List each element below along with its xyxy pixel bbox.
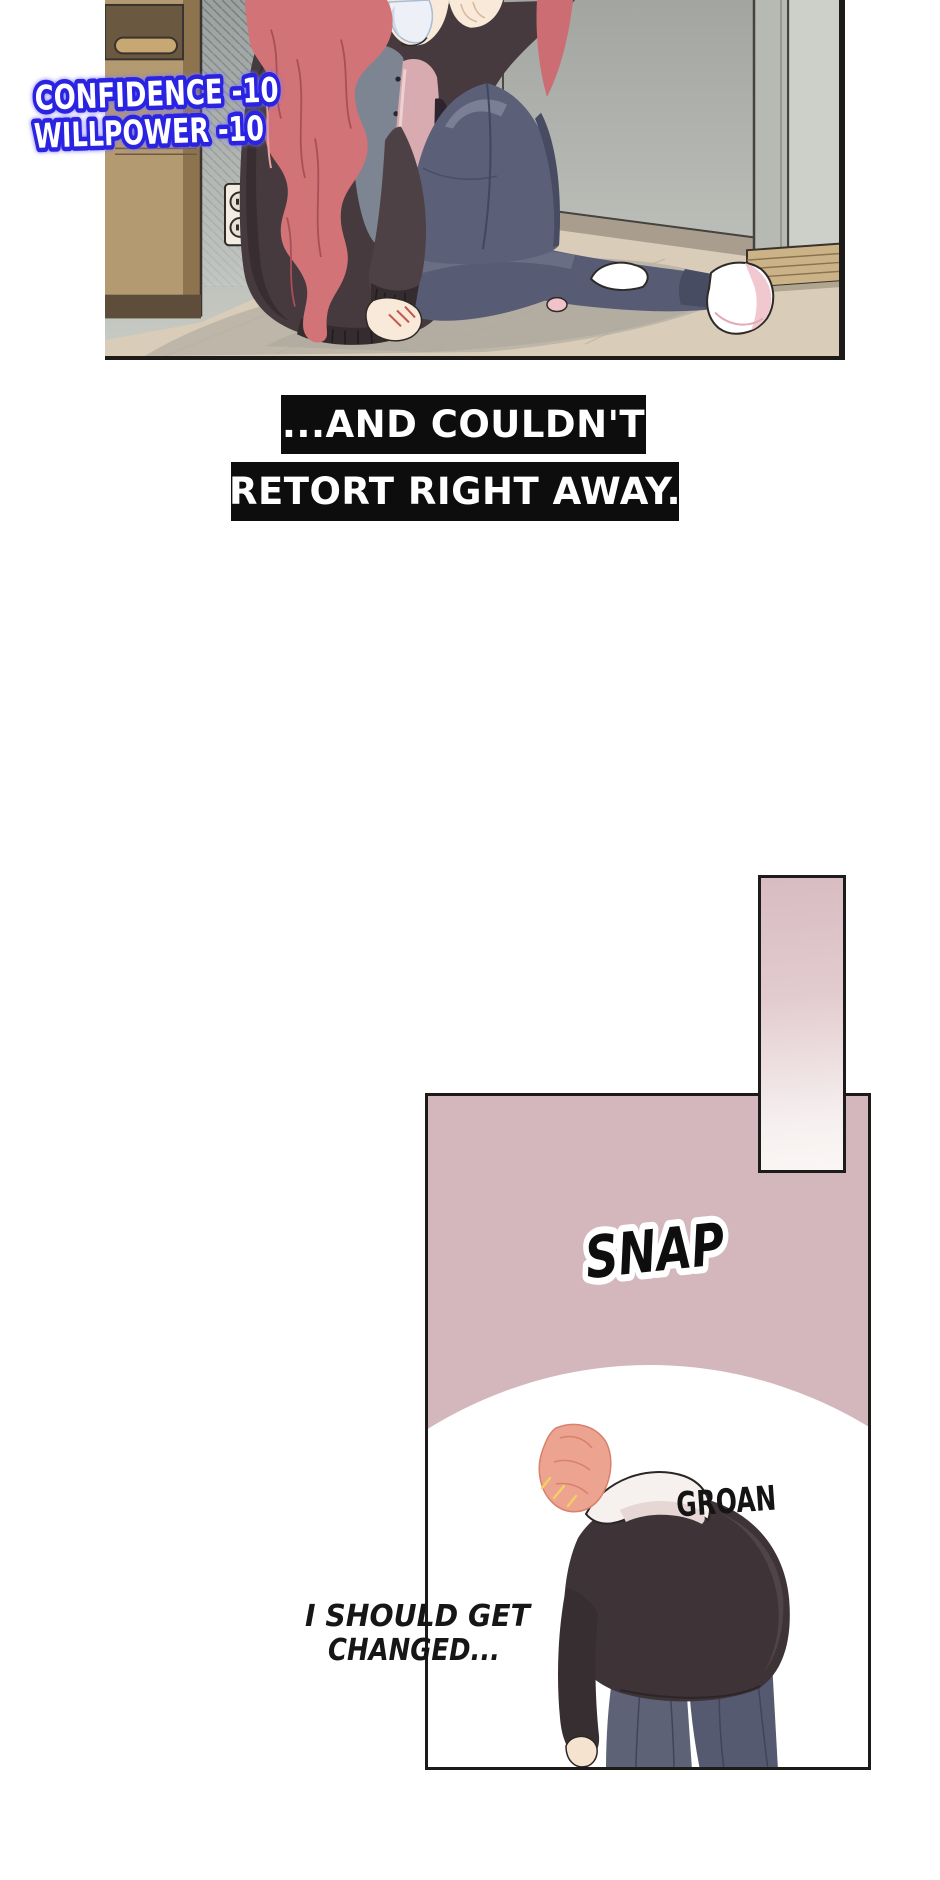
panel-1 — [105, 0, 845, 360]
panel-2-figure: GROAN — [520, 1418, 800, 1770]
thought-line-2: CHANGED... — [328, 1633, 500, 1668]
panel-1-artwork — [105, 0, 845, 356]
door-strip — [758, 875, 846, 1173]
caption-box-2: RETORT RIGHT AWAY. — [231, 462, 679, 521]
stat-overlay: CONFIDENCE -10 WILLPOWER -10 — [18, 58, 348, 163]
thought-line-1: I SHOULD GET — [305, 1599, 532, 1634]
caption-text-2: RETORT RIGHT AWAY. — [229, 470, 681, 513]
stat-line-willpower: WILLPOWER -10 — [33, 109, 264, 157]
panel-1-right-border — [839, 0, 845, 356]
figure-sleeve — [558, 1588, 599, 1758]
figure-hand — [566, 1736, 597, 1766]
sfx-snap-text: SNAP — [582, 1210, 728, 1292]
door-frame — [754, 0, 845, 250]
webtoon-page: CONFIDENCE -10 WILLPOWER -10 ...AND COUL… — [0, 0, 940, 1880]
sfx-groan-text: GROAN — [675, 1479, 778, 1526]
caption-box-1: ...AND COULDN'T — [281, 395, 646, 454]
sfx-snap: SNAP — [518, 1196, 798, 1306]
thought-bubble-text: I SHOULD GET CHANGED... — [290, 1594, 550, 1674]
caption-text-1: ...AND COULDN'T — [282, 403, 645, 446]
